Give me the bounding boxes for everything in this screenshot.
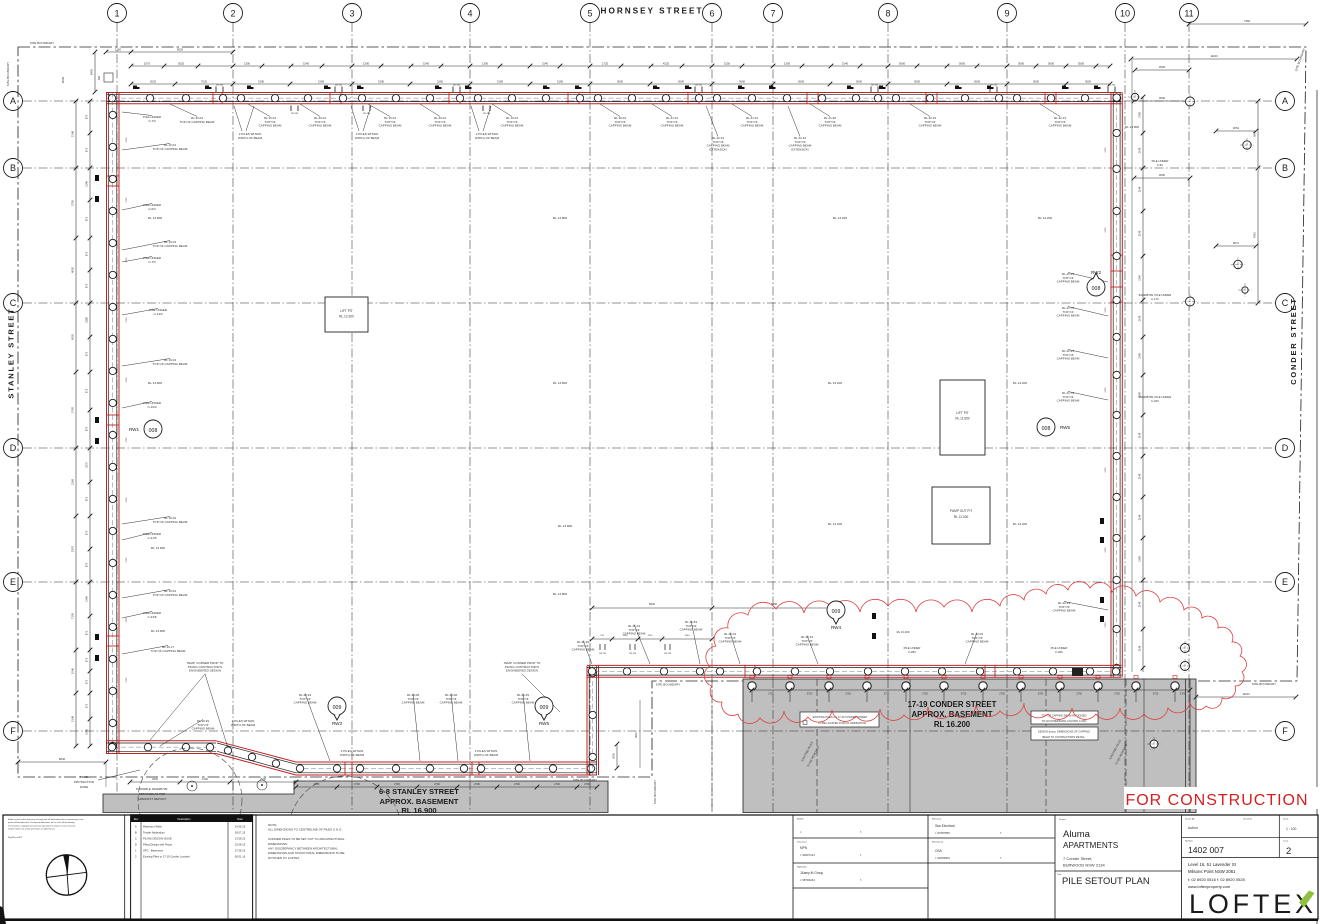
svg-text:f:: f: (1000, 856, 1002, 860)
svg-text:t: 97087555: t: 97087555 (935, 831, 950, 835)
svg-text:875: 875 (85, 283, 89, 288)
svg-text:27.08.15: 27.08.15 (235, 848, 246, 852)
svg-text:CAPPING BEAM: CAPPING BEAM (623, 632, 646, 636)
svg-text:230 230: 230 230 (990, 85, 998, 87)
svg-text:1300: 1300 (784, 62, 791, 66)
svg-text:2: 2 (1286, 846, 1291, 857)
svg-text:2700: 2700 (1105, 387, 1107, 393)
svg-text:875: 875 (85, 351, 89, 356)
svg-text:3150: 3150 (724, 62, 731, 66)
svg-text:24.06.15: 24.06.15 (235, 824, 246, 828)
svg-text:2148: 2148 (1139, 556, 1142, 562)
svg-text:009: 009 (832, 609, 841, 615)
svg-text:A: A (135, 824, 137, 828)
svg-text:1300: 1300 (244, 62, 251, 66)
svg-text:CAPPING BEAM: CAPPING BEAM (1057, 314, 1080, 318)
svg-text:TREE: TREE (80, 775, 88, 779)
svg-text:3600: 3600 (1085, 80, 1092, 84)
svg-text:This drawing is copyright and: This drawing is copyright and cannot be … (8, 824, 75, 827)
svg-text:2700: 2700 (126, 317, 128, 323)
svg-text:15.08.15: 15.08.15 (235, 842, 246, 846)
svg-text:Description: Description (178, 817, 192, 821)
svg-text:2700: 2700 (1038, 693, 1044, 696)
svg-text:2368: 2368 (71, 478, 75, 485)
svg-text:ENGINEERED DESIGN: ENGINEERED DESIGN (506, 669, 538, 673)
svg-text:2: 2 (230, 9, 235, 19)
svg-text:8: 8 (885, 9, 890, 19)
svg-text:1300: 1300 (482, 62, 489, 66)
svg-text:230 230: 230 230 (216, 85, 224, 87)
svg-text:Aluma: Aluma (1063, 829, 1091, 840)
svg-text:9025: 9025 (177, 48, 184, 52)
svg-text:2148: 2148 (1139, 186, 1142, 192)
svg-text:2700: 2700 (1105, 547, 1107, 553)
svg-text:3000: 3000 (1159, 173, 1166, 177)
svg-text:C-24/5: C-24/5 (147, 615, 156, 619)
svg-text:C: C (10, 298, 17, 308)
svg-text:2700: 2700 (1105, 467, 1107, 473)
svg-text:APC - Basement: APC - Basement (143, 848, 163, 852)
svg-text:C-6/3: C-6/3 (148, 207, 156, 211)
svg-text:B: B (10, 163, 16, 173)
svg-text:CAPPING BEAM: CAPPING BEAM (309, 124, 332, 128)
svg-text:RL 11.650: RL 11.650 (955, 417, 970, 421)
svg-text:WIDTH OF BEAM: WIDTH OF BEAM (474, 753, 499, 757)
svg-text:CAPPING BEAM: CAPPING BEAM (1049, 124, 1072, 128)
svg-text:9009: 9009 (61, 76, 65, 83)
svg-text:2700: 2700 (554, 782, 560, 786)
svg-text:LOFTEX: LOFTEX (1189, 889, 1317, 919)
svg-text:5410: 5410 (1253, 231, 1257, 238)
svg-text:BURWOOD NSW 2134: BURWOOD NSW 2134 (1063, 863, 1105, 868)
svg-text:TOP OF CAPPING BEAM: TOP OF CAPPING BEAM (153, 147, 188, 151)
svg-text:230 230: 230 230 (335, 85, 343, 87)
svg-text:CAPPING BEAM: CAPPING BEAM (1057, 280, 1080, 284)
svg-text:RL 13.800: RL 13.800 (148, 216, 162, 220)
svg-text:BEAM TO CONTRACTOR'S DETAIL.: BEAM TO CONTRACTOR'S DETAIL. (1042, 735, 1085, 739)
svg-text:Level 16, 51 Lavender St: Level 16, 51 Lavender St (1188, 862, 1237, 867)
svg-text:2700: 2700 (126, 257, 128, 263)
svg-text:675: 675 (85, 251, 89, 256)
svg-text:RL 13.800: RL 13.800 (1125, 125, 1139, 129)
svg-text:PUMP OUT PIT: PUMP OUT PIT (950, 509, 973, 513)
svg-text:230 230: 230 230 (483, 113, 491, 115)
svg-text:ENGINEERED DESIGN: ENGINEERED DESIGN (189, 669, 221, 673)
svg-text:2700: 2700 (922, 693, 928, 696)
svg-text:2148: 2148 (1139, 514, 1142, 520)
svg-text:3000: 3000 (612, 753, 616, 759)
svg-text:875: 875 (85, 216, 89, 221)
svg-text:875: 875 (85, 630, 89, 635)
svg-text:3671: 3671 (1233, 241, 1240, 245)
svg-text:TOP OF CAPPING BEAM: TOP OF CAPPING BEAM (153, 244, 188, 248)
svg-text:WIDTH OF BEAM: WIDTH OF BEAM (475, 136, 500, 140)
svg-text:PILING DESIGN ISSUE: PILING DESIGN ISSUE (143, 836, 172, 840)
svg-text:POSSIBLE 300&#8709;: POSSIBLE 300&#8709; (136, 787, 168, 791)
svg-text:11: 11 (1184, 9, 1193, 19)
svg-text:2700: 2700 (474, 782, 480, 786)
svg-text:675: 675 (85, 147, 89, 152)
svg-text:CAPPING BEAM: CAPPING BEAM (1053, 609, 1076, 613)
svg-text:f:: f: (860, 853, 862, 857)
svg-text:RL 13.800: RL 13.800 (553, 592, 567, 596)
svg-text:Star Electrical: Star Electrical (935, 824, 955, 828)
svg-text:2700: 2700 (845, 693, 851, 696)
svg-text:7: 7 (770, 9, 775, 19)
svg-text:TOP OF CAPPING BEAM: TOP OF CAPPING BEAM (153, 362, 188, 366)
svg-text:t: 94063500: t: 94063500 (935, 856, 950, 860)
svg-text:675: 675 (85, 703, 89, 708)
svg-text:3600: 3600 (1048, 62, 1055, 66)
svg-text:2700: 2700 (1076, 693, 1082, 696)
svg-text:TOP OF CAPPING BEAM: TOP OF CAPPING BEAM (153, 520, 188, 524)
svg-text:Checked: Checked (1243, 819, 1252, 821)
svg-text:C-14/3: C-14/3 (153, 312, 162, 316)
svg-text:675: 675 (85, 530, 89, 535)
svg-text:4505: 4505 (71, 333, 75, 340)
svg-text:Electrical: Electrical (932, 818, 941, 821)
svg-text:1200: 1200 (202, 777, 208, 781)
svg-text:Number: Number (1185, 840, 1193, 843)
svg-text:2700: 2700 (1105, 307, 1107, 313)
svg-text:DIMENSIONS.: DIMENSIONS. (268, 842, 288, 846)
svg-text:4225: 4225 (663, 62, 670, 66)
svg-text:7105: 7105 (71, 612, 75, 619)
svg-text:RL 13.200: RL 13.200 (828, 522, 842, 526)
svg-text:600: 600 (98, 75, 101, 80)
svg-text:17-19 CONDER STREET: 17-19 CONDER STREET (908, 700, 997, 709)
svg-text:230 230: 230 230 (599, 653, 606, 655)
svg-text:RL 13.200: RL 13.200 (897, 630, 910, 634)
svg-text:2700: 2700 (884, 693, 890, 696)
svg-text:3600: 3600 (856, 80, 863, 84)
svg-text:3190: 3190 (318, 80, 325, 84)
svg-text:F: F (1282, 726, 1288, 736)
svg-text:3051: 3051 (1233, 126, 1240, 130)
svg-text:SITE BOUNDARY: SITE BOUNDARY (6, 62, 10, 86)
svg-text:TOP OF CAPPING BEAM: TOP OF CAPPING BEAM (153, 593, 188, 597)
svg-text:2700: 2700 (126, 137, 128, 143)
svg-text:230 230: 230 230 (363, 113, 371, 115)
svg-text:2360: 2360 (685, 635, 691, 637)
svg-text:E: E (1282, 577, 1288, 587)
svg-text:875: 875 (85, 679, 89, 684)
svg-text:3600: 3600 (899, 62, 906, 66)
svg-text:CAPPING BEAM: CAPPING BEAM (719, 640, 742, 644)
svg-text:DESIGN &amp; DIMENSIONS OF CAP: DESIGN &amp; DIMENSIONS OF CAPPING (1038, 730, 1090, 734)
svg-text:2370: 2370 (71, 545, 75, 552)
svg-text:3600: 3600 (974, 80, 981, 84)
svg-text:Scale: Scale (1283, 819, 1289, 821)
svg-text:230 230: 230 230 (664, 653, 671, 655)
svg-text:C-28C: C-28C (1055, 650, 1063, 654)
svg-text:RL 13.800: RL 13.800 (558, 524, 572, 528)
svg-text:C-21/5: C-21/5 (147, 536, 156, 540)
svg-text:TO ACCOMMODATE COLUMN C-09C: TO ACCOMMODATE COLUMN C-09C (1042, 719, 1087, 723)
svg-text:7025: 7025 (201, 80, 208, 84)
svg-text:C-7/3: C-7/3 (148, 260, 156, 264)
svg-text:RL 16.900: RL 16.900 (401, 806, 436, 815)
svg-text:EXISTING PILES OF 17-19 CONDER: EXISTING PILES OF 17-19 CONDER STREET (813, 715, 868, 719)
svg-text:ZONE: ZONE (80, 785, 89, 789)
svg-text:f:: f: (1000, 831, 1002, 835)
svg-text:STANLEY STREET: STANLEY STREET (7, 307, 16, 398)
svg-text:Author: Author (1188, 826, 1199, 830)
svg-text:Rev: Rev (134, 817, 139, 821)
svg-text:3140: 3140 (303, 62, 310, 66)
svg-text:CONDER STREET: CONDER STREET (1289, 297, 1298, 385)
svg-text:1725: 1725 (602, 62, 609, 66)
svg-text:NOTIFIED TO LOFTEX.: NOTIFIED TO LOFTEX. (268, 856, 300, 860)
svg-text:FOR CONSTRUCTION: FOR CONSTRUCTION (1125, 792, 1308, 809)
svg-text:Reg/Plot ref IPP: Reg/Plot ref IPP (8, 836, 23, 839)
svg-text:Retention Walls: Retention Walls (143, 824, 162, 828)
svg-text:3600: 3600 (617, 80, 624, 84)
svg-text:Drawn By: Drawn By (1185, 818, 1195, 821)
svg-text:2700: 2700 (126, 437, 128, 443)
svg-text:RL 12.000: RL 12.000 (954, 515, 969, 519)
svg-text:2030: 2030 (152, 777, 158, 781)
svg-text:2700: 2700 (434, 782, 440, 786)
svg-text:LIFT PIT: LIFT PIT (340, 309, 352, 313)
svg-text:A: A (1282, 96, 1288, 106)
svg-text:3: 3 (349, 9, 354, 19)
svg-text:675: 675 (85, 657, 89, 662)
svg-text:C-17C: C-17C (1151, 297, 1159, 301)
svg-text:08.01.16: 08.01.16 (235, 854, 246, 858)
svg-text:2700: 2700 (126, 197, 128, 203)
svg-text:3600: 3600 (914, 80, 921, 84)
svg-text:CAPPING BEAM: CAPPING BEAM (661, 124, 684, 128)
svg-text:D: D (1282, 443, 1289, 453)
svg-text:EXTENSION: EXTENSION (791, 147, 808, 151)
svg-text:4: 4 (467, 9, 472, 19)
svg-text:RW3: RW3 (332, 721, 343, 726)
svg-text:3140: 3140 (542, 62, 549, 66)
svg-text:Existing Piles to 17-19 Conder: Existing Piles to 17-19 Conder Located (143, 854, 190, 858)
svg-text:009: 009 (333, 705, 342, 711)
svg-text:11163: 11163 (1242, 692, 1250, 696)
svg-text:portion off-site fabrication.: portion off-site fabrication. Use figure… (8, 821, 75, 824)
svg-text:ALL DIMENSIONS TO CENTRELINE O: ALL DIMENSIONS TO CENTRELINE OF PILES U.… (268, 828, 342, 832)
svg-text:CAPPING BEAM: CAPPING BEAM (680, 628, 703, 632)
svg-text:1402 007: 1402 007 (1188, 845, 1224, 855)
svg-text:SITE BOUNDARY: SITE BOUNDARY (653, 780, 657, 804)
svg-text:2148: 2148 (1139, 473, 1142, 479)
svg-text:APPROX. BASEMENT: APPROX. BASEMENT (380, 797, 459, 806)
svg-text:t: 99297144: t: 99297144 (800, 853, 815, 857)
svg-text:2148: 2148 (85, 729, 89, 735)
svg-text:2700: 2700 (584, 782, 590, 786)
svg-text:7360: 7360 (1244, 19, 1251, 23)
svg-text:230 230: 230 230 (871, 85, 879, 87)
svg-text:2148: 2148 (1139, 432, 1142, 438)
svg-text:CAPPING BEAM: CAPPING BEAM (501, 124, 524, 128)
svg-text:2700: 2700 (126, 677, 128, 683)
svg-text:CAPPING BEAM: CAPPING BEAM (1057, 399, 1080, 403)
svg-text:2700: 2700 (1114, 693, 1120, 696)
svg-text:3190: 3190 (437, 80, 444, 84)
svg-text:2368: 2368 (85, 317, 89, 323)
svg-text:WIDTH OF BEAM: WIDTH OF BEAM (231, 723, 256, 727)
svg-text:Builder to plan and/or determi: Builder to plan and/or determine and ver… (8, 818, 83, 821)
svg-text:CAPPING BEAM: CAPPING BEAM (609, 124, 632, 128)
svg-text:MPN: MPN (800, 846, 808, 850)
svg-text:WIDTH OF BEAM: WIDTH OF BEAM (238, 136, 263, 140)
svg-text:CAPPING BEAM: CAPPING BEAM (1057, 357, 1080, 361)
svg-text:3000: 3000 (1159, 65, 1166, 69)
svg-text:2148: 2148 (85, 596, 89, 602)
svg-text:2148: 2148 (1139, 353, 1142, 359)
svg-text:C-28C: C-28C (908, 650, 916, 654)
svg-text:3600: 3600 (1033, 80, 1040, 84)
svg-text:DIMENSIONS AND STRUCTURAL DIME: DIMENSIONS AND STRUCTURAL DIMENSIONS TO … (268, 851, 344, 855)
svg-text:3140: 3140 (842, 62, 849, 66)
svg-text:2148: 2148 (85, 181, 89, 187)
svg-text:RL 13.800: RL 13.800 (553, 381, 567, 385)
svg-text:2330: 2330 (648, 635, 654, 637)
svg-text:2148: 2148 (71, 130, 75, 137)
svg-text:B: B (135, 830, 137, 834)
svg-text:F: F (10, 726, 16, 736)
svg-text:2148: 2148 (1139, 275, 1142, 281)
svg-text:B: B (1282, 163, 1288, 173)
svg-text:CAPPING BEAM: CAPPING BEAM (741, 124, 764, 128)
svg-text:CAPPING BEAM: CAPPING BEAM (259, 124, 282, 128)
svg-text:2700: 2700 (126, 617, 128, 623)
svg-text:J&amp;M Group: J&amp;M Group (800, 871, 823, 875)
svg-text:RL 13.800: RL 13.800 (148, 381, 162, 385)
svg-text:CAPPING BEAM: CAPPING BEAM (572, 648, 595, 652)
svg-text:CAPPING BEAM: CAPPING BEAM (192, 727, 215, 731)
svg-text:2700: 2700 (126, 377, 128, 383)
svg-text:NOTE:: NOTE: (268, 823, 277, 827)
svg-text:E: E (10, 577, 16, 587)
svg-text:2148: 2148 (1139, 147, 1142, 153)
svg-text:PILE SETOUT PLAN: PILE SETOUT PLAN (1062, 875, 1150, 886)
svg-text:SITE BOUNDARY: SITE BOUNDARY (656, 683, 680, 687)
svg-text:CAPPING BEAM: CAPPING BEAM (796, 643, 819, 647)
svg-text:3612: 3612 (634, 732, 638, 738)
svg-text:ANY DISCREPANCY BETWEEN ARCHIT: ANY DISCREPANCY BETWEEN ARCHITECTURAL (268, 847, 338, 851)
svg-text:LIFT PIT: LIFT PIT (956, 411, 968, 415)
svg-text:2700: 2700 (354, 782, 360, 786)
svg-text:C-16/3: C-16/3 (147, 405, 156, 409)
svg-text:3190: 3190 (378, 80, 385, 84)
svg-text:t: 98793244: t: 98793244 (800, 878, 815, 882)
svg-text:1300: 1300 (363, 62, 370, 66)
svg-text:Milsons Point NSW 2061: Milsons Point NSW 2061 (1188, 869, 1236, 874)
svg-text:5940: 5940 (649, 602, 656, 606)
svg-text:HORNSEY STREET: HORNSEY STREET (601, 7, 704, 16)
svg-text:8450: 8450 (90, 68, 94, 75)
svg-text:3600: 3600 (678, 80, 685, 84)
svg-text:RW1: RW1 (129, 427, 140, 432)
svg-text:3190: 3190 (497, 80, 504, 84)
svg-text:RL 13.800: RL 13.800 (151, 629, 165, 633)
svg-text:2030: 2030 (260, 777, 266, 781)
svg-text:CAPPING BEAM: CAPPING BEAM (429, 124, 452, 128)
svg-text:EXTENSION: EXTENSION (709, 147, 726, 151)
svg-text:7 Conder Street,: 7 Conder Street, (1063, 856, 1092, 861)
svg-text:Date: Date (237, 817, 243, 821)
svg-text:f:: f: (860, 830, 862, 834)
svg-text:2148: 2148 (1139, 315, 1142, 321)
svg-text:3500: 3500 (1078, 62, 1085, 66)
svg-text:2700: 2700 (768, 693, 774, 696)
svg-text:2700: 2700 (807, 693, 813, 696)
svg-text:RETAINED AS PER: RETAINED AS PER (139, 792, 166, 796)
svg-text:RW5: RW5 (1060, 425, 1071, 430)
svg-text:CAPPING BEAM: CAPPING BEAM (919, 124, 942, 128)
svg-text:CAPPING BEAM: CAPPING BEAM (966, 640, 989, 644)
svg-text:2370: 2370 (85, 462, 89, 468)
svg-text:SITE BOUNDARY: SITE BOUNDARY (1252, 682, 1276, 686)
svg-text:RL 12.300: RL 12.300 (339, 315, 354, 319)
svg-text:RL 13.800: RL 13.800 (151, 546, 165, 550)
svg-text:ARBORIST REPORT: ARBORIST REPORT (138, 797, 167, 801)
svg-text:2700: 2700 (1105, 622, 1107, 628)
svg-text:medium without the written per: medium without the written permission of… (8, 828, 55, 831)
svg-text:18.07.15: 18.07.15 (235, 830, 246, 834)
svg-text:RL 13.800: RL 13.800 (553, 216, 567, 220)
svg-text:t:: t: (800, 830, 802, 834)
svg-text:CORNER PILES TO BE SET OUT TO: CORNER PILES TO BE SET OUT TO ARCHITECTU… (268, 837, 345, 841)
svg-text:1 : 100: 1 : 100 (1286, 827, 1296, 831)
svg-text:9: 9 (1004, 9, 1009, 19)
svg-text:WIDTH OF BEAM: WIDTH OF BEAM (340, 753, 365, 757)
svg-text:3600: 3600 (1018, 62, 1025, 66)
svg-text:875: 875 (85, 114, 89, 119)
svg-text:875: 875 (85, 426, 89, 431)
svg-text:2148: 2148 (1139, 230, 1142, 236)
svg-text:Piling Design with Props: Piling Design with Props (143, 842, 173, 846)
svg-text:APARTMENTS: APARTMENTS (1063, 841, 1119, 850)
svg-text:2700: 2700 (999, 693, 1005, 696)
svg-text:10: 10 (1120, 9, 1130, 19)
svg-text:675: 675 (85, 388, 89, 393)
svg-text:RL 13.200: RL 13.200 (833, 216, 847, 220)
svg-text:875: 875 (85, 562, 89, 567)
svg-text:PROTECTION: PROTECTION (74, 780, 94, 784)
svg-text:D: D (135, 842, 137, 846)
svg-text:Builder: Builder (797, 818, 804, 821)
svg-text:230 230: 230 230 (291, 113, 299, 115)
svg-text:APPROX. BASEMENT: APPROX. BASEMENT (911, 710, 992, 719)
svg-text:f:: f: (860, 878, 862, 882)
svg-text:1075: 1075 (144, 62, 151, 66)
svg-text:2700: 2700 (126, 557, 128, 563)
svg-text:OSA: OSA (935, 849, 943, 853)
svg-text:RL 13.200: RL 13.200 (1013, 522, 1027, 526)
svg-text:t: 02 8920 0516 f: 02 8920 0: t: 02 8920 0516 f: 02 8920 0528 (1188, 877, 1245, 882)
svg-text:RW4: RW4 (831, 625, 842, 630)
svg-text:11163: 11163 (1210, 54, 1218, 58)
svg-text:5: 5 (587, 9, 592, 19)
svg-text:Mechanical: Mechanical (932, 842, 944, 844)
svg-text:3600: 3600 (798, 80, 805, 84)
svg-text:3600: 3600 (739, 80, 746, 84)
svg-text:Issue: Issue (1283, 841, 1289, 843)
svg-text:008: 008 (1042, 426, 1051, 432)
svg-text:8046: 8046 (59, 757, 66, 761)
svg-text:WIDTH OF BEAM: WIDTH OF BEAM (355, 136, 380, 140)
svg-text:1: 1 (114, 9, 119, 19)
svg-text:2700: 2700 (1105, 227, 1107, 233)
svg-text:2705: 2705 (71, 406, 75, 413)
svg-text:D: D (10, 443, 17, 453)
svg-text:3600: 3600 (959, 62, 966, 66)
